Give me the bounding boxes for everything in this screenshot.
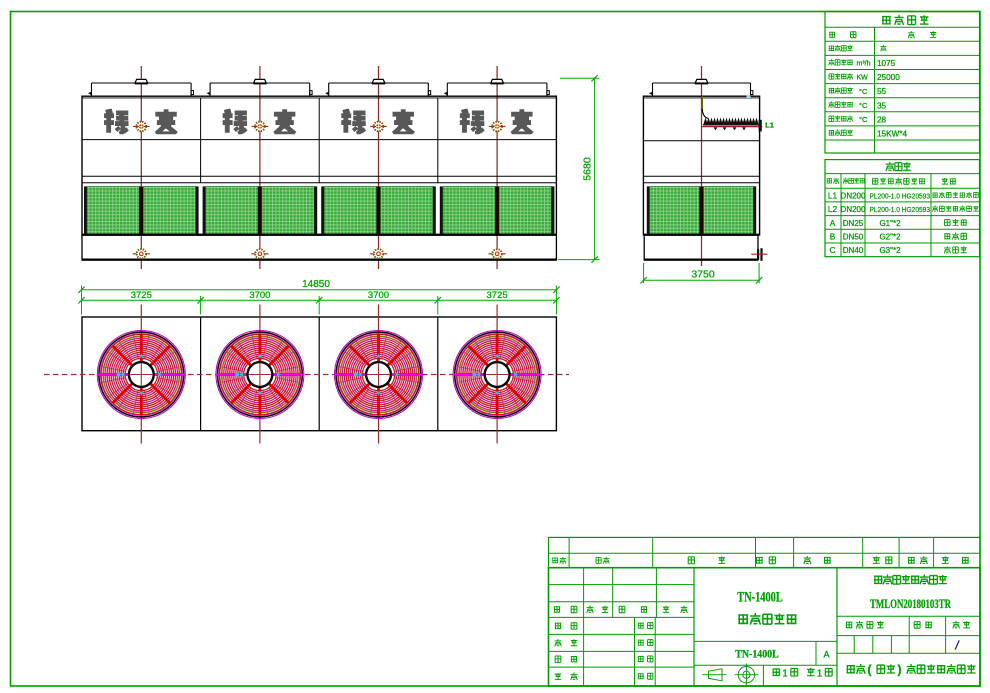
svg-text:L2: L2	[828, 204, 838, 214]
svg-text:DN200: DN200	[841, 191, 866, 200]
svg-text:L1: L1	[828, 190, 838, 200]
svg-text:TN-1400L: TN-1400L	[737, 590, 783, 606]
svg-text:KW: KW	[857, 75, 869, 82]
svg-text:A: A	[823, 650, 829, 660]
svg-text:1: 1	[782, 669, 788, 680]
svg-text:35: 35	[877, 101, 887, 110]
svg-text:3725: 3725	[131, 290, 152, 301]
svg-text:28: 28	[877, 115, 887, 124]
svg-text:C: C	[830, 245, 836, 255]
svg-text:3700: 3700	[249, 290, 270, 301]
svg-text:m³/h: m³/h	[857, 61, 871, 68]
svg-text:DN200: DN200	[841, 205, 866, 214]
svg-text:PL200-1.0 HG20593: PL200-1.0 HG20593	[870, 191, 931, 200]
svg-text:G3"*2: G3"*2	[879, 246, 901, 255]
svg-text:15KW*4: 15KW*4	[877, 130, 907, 139]
svg-text:3750: 3750	[691, 269, 715, 281]
svg-text:G2"*2: G2"*2	[879, 233, 901, 242]
svg-text:14850: 14850	[302, 279, 330, 290]
svg-text:PL200-1.0 HG20593: PL200-1.0 HG20593	[870, 205, 931, 214]
svg-text:TMLON20180103TR: TMLON20180103TR	[870, 596, 951, 611]
svg-text:DN40: DN40	[843, 246, 864, 255]
svg-text:°C: °C	[859, 87, 868, 96]
svg-text:(: (	[868, 663, 872, 677]
svg-text:L1: L1	[765, 121, 774, 130]
svg-text:DN50: DN50	[843, 233, 864, 242]
svg-text:55: 55	[877, 87, 887, 96]
svg-text:B: B	[830, 232, 836, 242]
svg-text:3700: 3700	[368, 290, 389, 301]
svg-text:DN25: DN25	[843, 219, 864, 228]
svg-text:1075: 1075	[877, 59, 896, 68]
svg-text:5680: 5680	[582, 157, 594, 181]
svg-text:1: 1	[817, 669, 823, 680]
svg-text:°C: °C	[859, 101, 868, 110]
svg-text:G1"*2: G1"*2	[879, 219, 901, 228]
svg-text:25000: 25000	[877, 73, 900, 82]
svg-text:A: A	[830, 218, 836, 228]
svg-text:): )	[898, 663, 902, 677]
svg-text:°C: °C	[859, 115, 868, 124]
svg-text:3725: 3725	[487, 290, 508, 301]
svg-text:TN-1400L: TN-1400L	[735, 646, 779, 660]
